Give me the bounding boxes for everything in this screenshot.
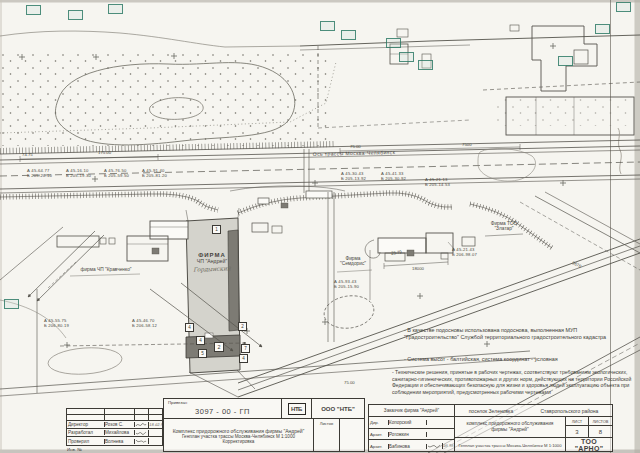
structure-marker: 4 [239,354,248,363]
inventory-number-label: Инв. № [67,447,82,452]
survey-point-label: А 45-55.75Б 206-80.19 [44,318,69,329]
document-number: 3097 - 00 - ГП [164,405,281,418]
firma-semdoris-label: Фирма "Семдорис" [330,256,376,266]
dimension-label: 74.75 [22,152,33,157]
signature-icon [427,443,443,449]
note-base-map: - В качестве подосновы использована подо… [404,327,632,341]
empty-cell [340,419,364,452]
sheets-label: ЛИСТОВ [589,417,612,425]
signature-icon [135,438,149,444]
survey-point-label: А 45-16.10Б 205-19.30 [66,168,91,179]
benchmark-marker [68,10,83,20]
org-name: ООО "НТБ" [312,399,364,418]
location-label: поселок Зеленовка [469,408,514,414]
role-architect1: Архит. [369,432,389,437]
benchmark-marker [341,30,356,40]
benchmark-marker [558,56,573,66]
embankment-ramps [0,186,640,342]
structure-marker: 1 [212,225,221,234]
role-developer: Разработал [67,430,105,435]
survey-point-label: А 45-91.40Б 205-81.20 [142,168,167,179]
titleblock-left-table: Директор Розов С. 18.02.95 Разработал Ми… [66,408,163,446]
structure-marker: 2 [238,322,247,331]
benchmark-marker [399,52,414,62]
benchmark-marker [386,38,401,48]
dimension-label: 7500 [462,142,472,147]
titleblock-right: Заказчик фирма "Андрей" поселок Зеленовк… [368,404,613,452]
survey-point-label: А 45-46.70Б 206-58.12 [132,318,157,329]
date-babinova: 05.95 [443,444,454,448]
genplan-sheet: Ось трассы Москва-Челябинск ФИРМА ЧП "Ан… [0,0,640,453]
company-name: ТОО "АРНО" [566,438,612,452]
structure-marker: 4 [196,336,205,345]
dimension-label: 175.00 [98,150,111,155]
name-developer: Михайлова [105,430,135,435]
highway [0,140,640,193]
name-rogozhkin: Рогожкин [389,432,427,437]
name-checker: Волнева [105,439,135,444]
benchmark-marker [616,2,631,12]
signature-icon [135,430,149,436]
structure-marker: 2 [214,342,224,352]
orchard-area [0,31,630,146]
parcel-kravchenko [0,227,168,301]
firma-semdoris-line2: "Семдорис" [330,261,376,266]
note-technical: - Технические решения, принятые в рабочи… [392,369,636,395]
date-director: 18.02.95 [149,423,162,427]
structure-marker: 5 [198,349,207,358]
benchmark-marker [108,4,123,14]
sheet-number: 3 [566,426,589,437]
drawing-title: Генплан участка трассы Москва-Челябинск … [455,438,566,452]
survey-point-label: А 45-41.33Б 205-30.92 [381,171,406,182]
benchmark-marker [4,299,19,309]
ntb-logo: НТБ [288,403,306,415]
firma-andrey-line2: ЧП "Андрей" [186,258,238,264]
signature-icon [135,422,149,428]
complex-title: комплекс придорожного обслуживания фирмы… [455,417,566,437]
benchmark-marker [595,24,610,34]
customer-label: Заказчик фирма "Андрей" [369,405,455,416]
firma-kravchenko-label: фирма ЧП "Кравченко" [66,267,146,272]
benchmark-marker [320,21,335,31]
role-architect2: Архит. [369,444,389,449]
structure-marker: 7 [241,344,250,353]
structure-marker: 4 [185,323,194,332]
survey-point-label: А 45-21.13Б 205-14.53 [425,177,450,188]
role-checker: Проверил [67,439,105,444]
listov-mid-label: Листов [314,419,340,452]
benchmark-marker [26,5,41,15]
survey-point-label: А 45-64.77Б 205-20.10 [27,168,52,179]
role-dir: Дир. [369,420,389,425]
note-coordinate-system: - Система высот - балтийская, система ко… [404,356,636,363]
role-director: Директор [67,422,105,427]
name-director: Розов С. [105,422,135,427]
sheets-total: 8 [589,426,612,437]
firma-zlatar-label: Фирма ТОО "Златар" [480,221,528,231]
survey-point-label: А 45-93.43Б 205-15.90 [334,279,359,290]
titleblock-middle: Привязан 3097 - 00 - ГП НТБ ООО "НТБ" Ко… [163,398,365,452]
district-label: Ставропольского района [540,408,598,414]
project-line3: Корректировка [223,439,255,444]
name-babinova: Бабинова [389,444,427,449]
name-koporsky: Копорский [389,420,427,425]
firma-andrey-label: ФИРМА ЧП "Андрей" Гордынский [186,252,238,272]
benchmark-marker [418,60,433,70]
sheet-label: ЛИСТ [566,417,589,425]
firma-andrey-owner: Гордынский [186,265,238,273]
survey-point-label: А 45-21.43Б 206-98.07 [452,247,477,258]
survey-point-label: А 45-30.43Б 205-13.92 [341,171,366,182]
parcel-andrey [150,208,282,397]
dimension-label: 75.00 [344,380,355,385]
firma-zlatar-line2: "Златар" [480,226,528,231]
dimension-label: 18000 [412,266,424,271]
dimension-label: 75.00 [350,144,361,149]
survey-point-label: А 45-76.50Б 205-59.50 [104,168,129,179]
